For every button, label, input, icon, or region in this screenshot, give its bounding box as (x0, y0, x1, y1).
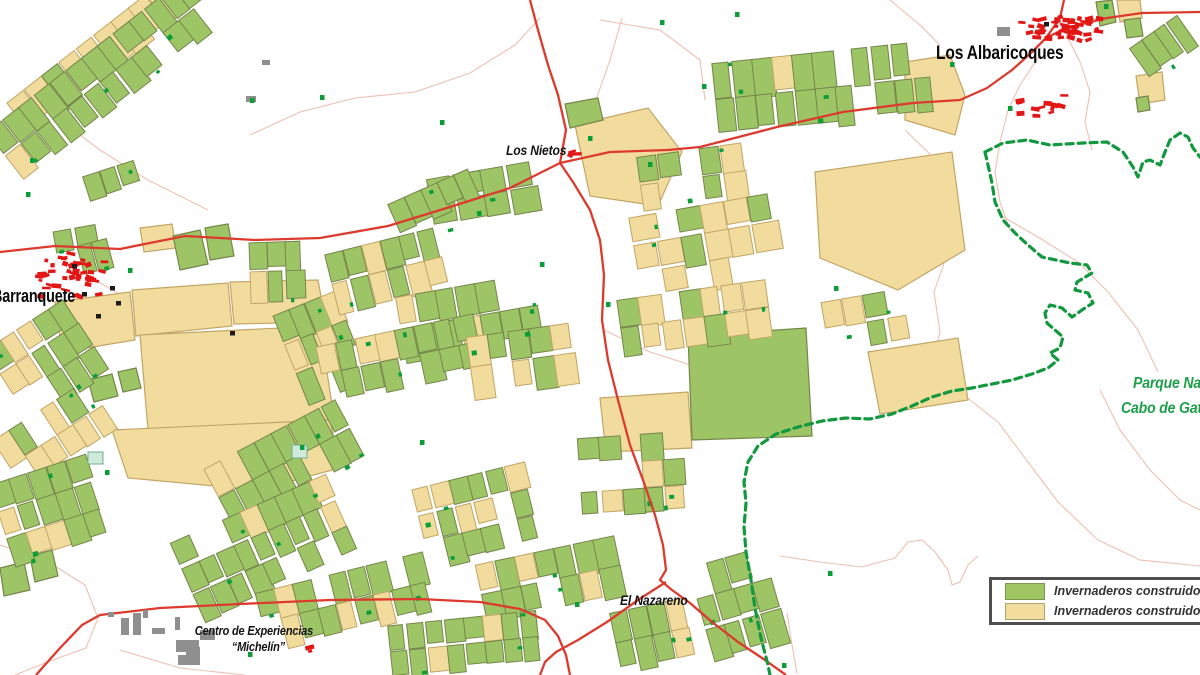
green-mark (660, 20, 665, 25)
greenhouse-cluster (712, 41, 934, 139)
building-red (1032, 35, 1041, 40)
track-line (1100, 390, 1200, 510)
road-line (530, 0, 566, 163)
building-red (308, 650, 312, 653)
building-red (62, 261, 69, 267)
building-red (1054, 25, 1058, 28)
building-red (61, 288, 71, 293)
building-red (573, 152, 582, 155)
greenhouse-cluster (688, 547, 790, 665)
map-canvas: Los AlbaricoquesBarranqueteLos NietosEl … (0, 0, 1200, 675)
track-line (250, 18, 540, 135)
green-mark (105, 470, 110, 475)
green-mark (702, 84, 707, 89)
field-tan (132, 283, 232, 336)
building-red (1018, 21, 1025, 24)
building-red (48, 269, 56, 273)
building-red (1032, 114, 1040, 118)
building-red (38, 279, 42, 282)
building-red (1058, 36, 1065, 40)
pond-parcel (292, 445, 307, 458)
greenhouse-cluster (83, 160, 142, 201)
field-green (118, 368, 141, 392)
building-red (84, 282, 91, 288)
greenhouse-cluster (610, 598, 696, 674)
field-green (0, 562, 30, 596)
building-black (96, 314, 101, 319)
map-screenshot: { "map": {"width": 1200, "height": 675, … (0, 0, 1200, 675)
legend-swatch-green (1005, 583, 1045, 600)
green-mark (250, 98, 255, 103)
field-green (205, 224, 234, 260)
legend-label-greenhouses-before: Invernaderos construidos ant (1054, 584, 1200, 598)
building-red (1083, 32, 1091, 37)
building-red (1094, 29, 1104, 34)
track-line (780, 540, 978, 585)
building-gray (152, 628, 165, 634)
green-mark (1008, 106, 1013, 111)
building-red (1028, 24, 1034, 28)
field-green (1136, 96, 1150, 112)
green-mark (128, 268, 133, 273)
green-mark (320, 95, 325, 100)
green-mark (735, 12, 740, 17)
legend-item-greenhouses-before: Invernaderos construidos ant (1005, 583, 1200, 600)
building-red (1040, 30, 1045, 35)
building-red (1015, 98, 1025, 104)
building-red (1071, 28, 1077, 33)
building-gray (175, 617, 180, 630)
building-gray (108, 612, 114, 617)
building-red (87, 278, 97, 282)
building-red (62, 276, 67, 280)
field-green (1124, 18, 1143, 38)
building-red (52, 283, 62, 288)
green-mark (834, 286, 839, 291)
field-green (688, 328, 812, 440)
building-black (110, 286, 115, 291)
green-mark (575, 602, 580, 607)
field-green (88, 374, 118, 402)
building-red (1032, 17, 1039, 22)
building-red (1060, 94, 1068, 97)
green-mark (26, 192, 31, 197)
track-line (890, 0, 940, 45)
pond-parcel (88, 452, 103, 464)
building-red (37, 294, 45, 299)
building-red (1036, 105, 1045, 110)
building-red (1016, 111, 1024, 116)
field-green (1096, 0, 1116, 26)
legend-swatch-tan (1005, 603, 1045, 620)
greenhouse-cluster (249, 241, 306, 304)
building-red (1062, 18, 1070, 23)
green-mark (248, 652, 253, 657)
building-gray (143, 610, 148, 618)
legend-item-greenhouses-after: Invernaderos construidos des (1005, 603, 1200, 620)
building-red (1080, 20, 1086, 23)
green-mark (950, 62, 955, 67)
green-mark (440, 120, 445, 125)
building-gray (262, 60, 270, 65)
green-mark (1104, 4, 1109, 9)
building-red (42, 287, 51, 290)
building-red (1026, 30, 1034, 35)
park-boundary-line (985, 133, 1200, 177)
building-red (1070, 25, 1079, 29)
building-red (1050, 106, 1055, 111)
building-red (50, 263, 54, 267)
greenhouse-cluster (821, 289, 910, 353)
building-red (66, 251, 76, 256)
green-mark (420, 440, 425, 445)
green-mark (300, 445, 305, 450)
building-red (44, 258, 48, 262)
building-gray (121, 618, 129, 635)
building-black (82, 292, 87, 297)
green-mark (588, 136, 593, 141)
greenhouse-cluster (388, 611, 541, 675)
green-mark (540, 262, 545, 267)
building-red (88, 270, 94, 274)
legend-label-greenhouses-after: Invernaderos construidos des (1054, 604, 1200, 618)
building-red (1047, 34, 1051, 37)
track-line (1064, 30, 1092, 150)
green-mark (606, 302, 611, 307)
building-gray (200, 630, 215, 640)
building-red (1076, 38, 1083, 44)
track-line (960, 392, 1200, 566)
green-mark (782, 663, 787, 668)
green-mark (648, 162, 653, 167)
building-black (230, 331, 235, 336)
building-red (305, 644, 315, 650)
building-gray (186, 647, 200, 665)
building-black (1044, 22, 1049, 27)
greenhouse-cluster (0, 454, 113, 568)
building-red (1085, 37, 1092, 43)
map-graphic (0, 0, 1200, 675)
building-black (116, 301, 121, 306)
building-black (72, 264, 77, 269)
track-line (1000, 215, 1158, 372)
building-red (46, 283, 53, 287)
track-line (600, 20, 705, 100)
building-gray (133, 613, 141, 635)
green-mark (30, 158, 35, 163)
field-tan (905, 55, 965, 135)
map-legend: Invernaderos construidos ant Invernadero… (989, 577, 1200, 625)
building-gray (997, 27, 1010, 36)
building-red (101, 260, 109, 263)
green-mark (828, 571, 833, 576)
